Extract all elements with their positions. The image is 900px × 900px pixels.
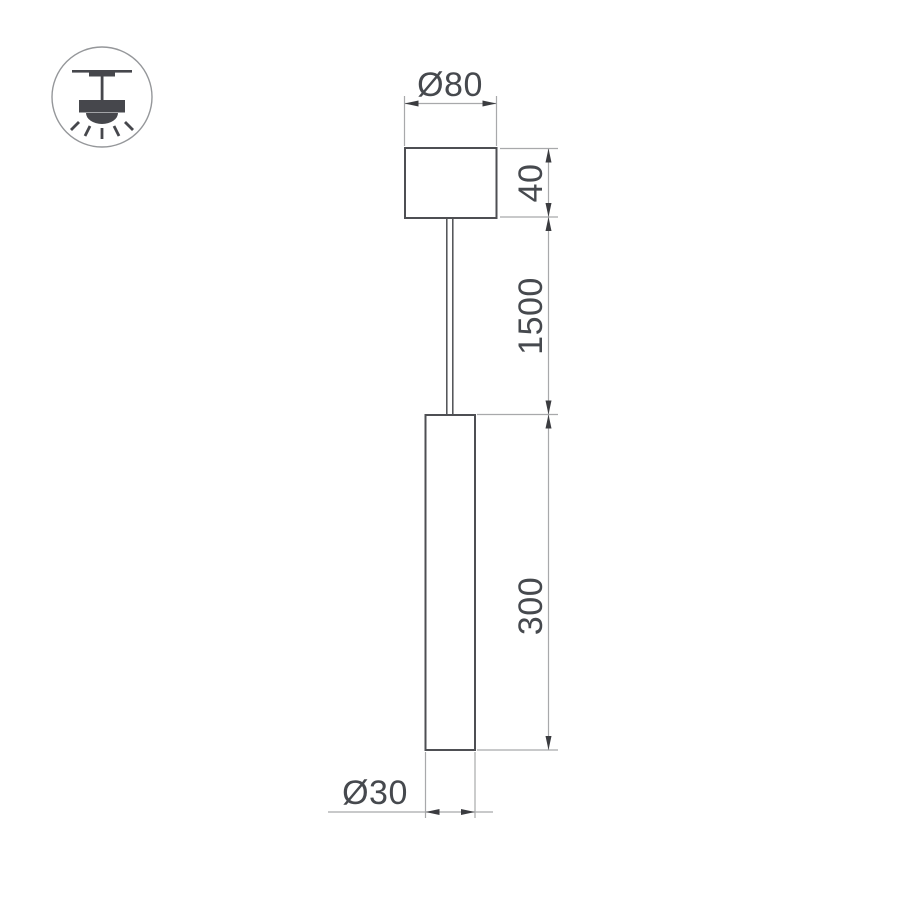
tube-rect bbox=[426, 415, 476, 750]
dim-label-tube-length: 300 bbox=[512, 577, 550, 635]
icon-stem bbox=[101, 72, 104, 101]
ceiling-mount-icon bbox=[52, 47, 152, 147]
icon-light-ray bbox=[114, 126, 119, 136]
dim-label-tube-diameter: Ø30 bbox=[342, 774, 408, 812]
icon-light-ray bbox=[85, 126, 90, 136]
arrow-up bbox=[546, 217, 552, 231]
canopy-rect bbox=[405, 148, 497, 218]
dimension-lines bbox=[328, 96, 558, 818]
arrow-down bbox=[546, 203, 552, 217]
luminaire-shapes bbox=[405, 148, 497, 750]
icon-lamp-dome bbox=[86, 113, 118, 124]
icon-light-ray bbox=[125, 122, 133, 130]
dimension-labels: Ø80 40 1500 300 Ø30 bbox=[342, 66, 550, 812]
icon-lamp-body bbox=[79, 100, 125, 113]
arrow-up bbox=[546, 149, 552, 163]
drawing-svg: Ø80 40 1500 300 Ø30 bbox=[0, 0, 900, 900]
arrow-right bbox=[461, 809, 475, 815]
arrow-down bbox=[546, 736, 552, 750]
dimension-drawing-page: Ø80 40 1500 300 Ø30 bbox=[0, 0, 900, 900]
dim-label-suspension-length: 1500 bbox=[512, 277, 550, 355]
dimension-arrows bbox=[405, 101, 552, 816]
dim-label-canopy-height: 40 bbox=[512, 164, 550, 203]
arrow-down bbox=[546, 401, 552, 415]
dim-label-canopy-diameter: Ø80 bbox=[417, 66, 483, 104]
arrow-right bbox=[483, 101, 497, 107]
arrow-up bbox=[546, 415, 552, 429]
icon-light-ray bbox=[71, 122, 79, 130]
arrow-left bbox=[426, 809, 440, 815]
icon-light-rays bbox=[71, 122, 133, 139]
